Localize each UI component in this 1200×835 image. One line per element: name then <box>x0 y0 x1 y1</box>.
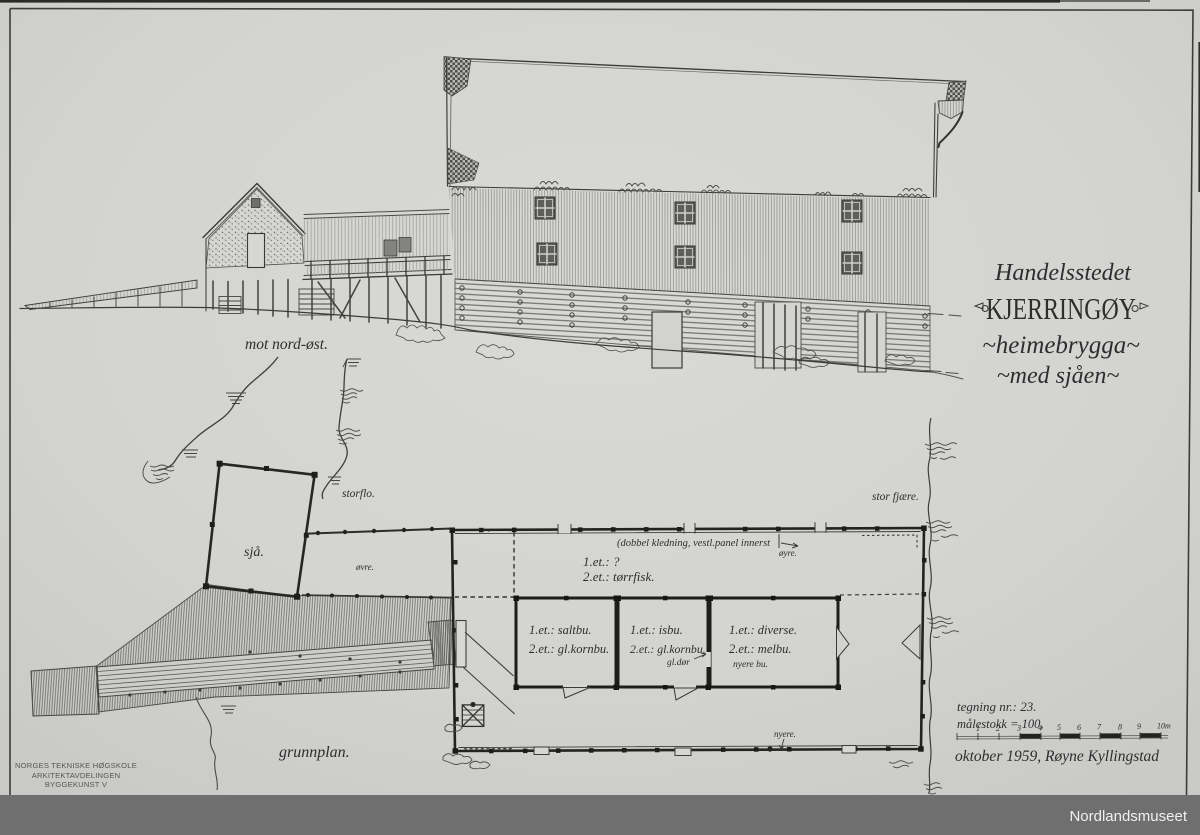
svg-text:2.et.: tørrfisk.: 2.et.: tørrfisk. <box>583 569 655 584</box>
svg-text:stor fjære.: stor fjære. <box>872 491 919 503</box>
svg-text:BYGGEKUNST V: BYGGEKUNST V <box>45 780 108 789</box>
svg-text:Handelsstedet: Handelsstedet <box>994 260 1132 286</box>
svg-text:målestokk = 100,: målestokk = 100, <box>957 717 1044 731</box>
svg-text:øyre.: øyre. <box>778 548 797 558</box>
svg-text:1.et.: ?: 1.et.: ? <box>583 554 620 569</box>
svg-text:gl.dør: gl.dør <box>667 658 690 668</box>
svg-text:2.et.: melbu.: 2.et.: melbu. <box>729 642 791 656</box>
svg-text:tegning nr.: 23.: tegning nr.: 23. <box>957 699 1036 714</box>
svg-text:ARKITEKTAVDELINGEN: ARKITEKTAVDELINGEN <box>32 771 121 780</box>
svg-text:~heimebrygga~: ~heimebrygga~ <box>982 332 1140 359</box>
svg-text:3: 3 <box>1016 724 1021 733</box>
svg-text:øvre.: øvre. <box>355 562 374 572</box>
svg-text:5: 5 <box>1057 723 1061 732</box>
svg-text:1.et.: diverse.: 1.et.: diverse. <box>729 623 797 637</box>
svg-text:6: 6 <box>1077 723 1081 732</box>
svg-text:nyere bu.: nyere bu. <box>733 660 768 670</box>
svg-text:storflo.: storflo. <box>342 488 375 500</box>
svg-text:2: 2 <box>996 724 1000 733</box>
svg-text:sjå.: sjå. <box>244 545 264 560</box>
svg-text:~med sjåen~: ~med sjåen~ <box>997 363 1120 389</box>
svg-text:mot nord-øst.: mot nord-øst. <box>245 336 328 353</box>
svg-text:9: 9 <box>1137 722 1141 731</box>
svg-text:oktober 1959, Røyne Kyllingsta: oktober 1959, Røyne Kyllingstad <box>955 748 1159 765</box>
svg-text:grunnplan.: grunnplan. <box>279 744 350 761</box>
svg-text:8: 8 <box>1118 723 1122 732</box>
svg-text:1.et.: saltbu.: 1.et.: saltbu. <box>529 623 592 637</box>
svg-text:NORGES TEKNISKE HØGSKOLE: NORGES TEKNISKE HØGSKOLE <box>15 761 137 770</box>
svg-text:(dobbel kledning, vestl.panel: (dobbel kledning, vestl.panel innerst <box>617 538 771 549</box>
svg-text:10m: 10m <box>1157 722 1171 731</box>
svg-text:1.et.: isbu.: 1.et.: isbu. <box>630 623 683 637</box>
svg-text:KJERRINGØY: KJERRINGØY <box>986 291 1136 326</box>
svg-text:2.et.: gl.kornbu.: 2.et.: gl.kornbu. <box>630 642 706 656</box>
svg-text:1: 1 <box>976 724 980 733</box>
svg-text:Nordlandsmuseet: Nordlandsmuseet <box>1069 808 1187 825</box>
svg-text:4: 4 <box>1038 724 1042 733</box>
svg-text:2.et.: gl.kornbu.: 2.et.: gl.kornbu. <box>529 642 609 656</box>
svg-text:nyere.: nyere. <box>774 729 796 739</box>
